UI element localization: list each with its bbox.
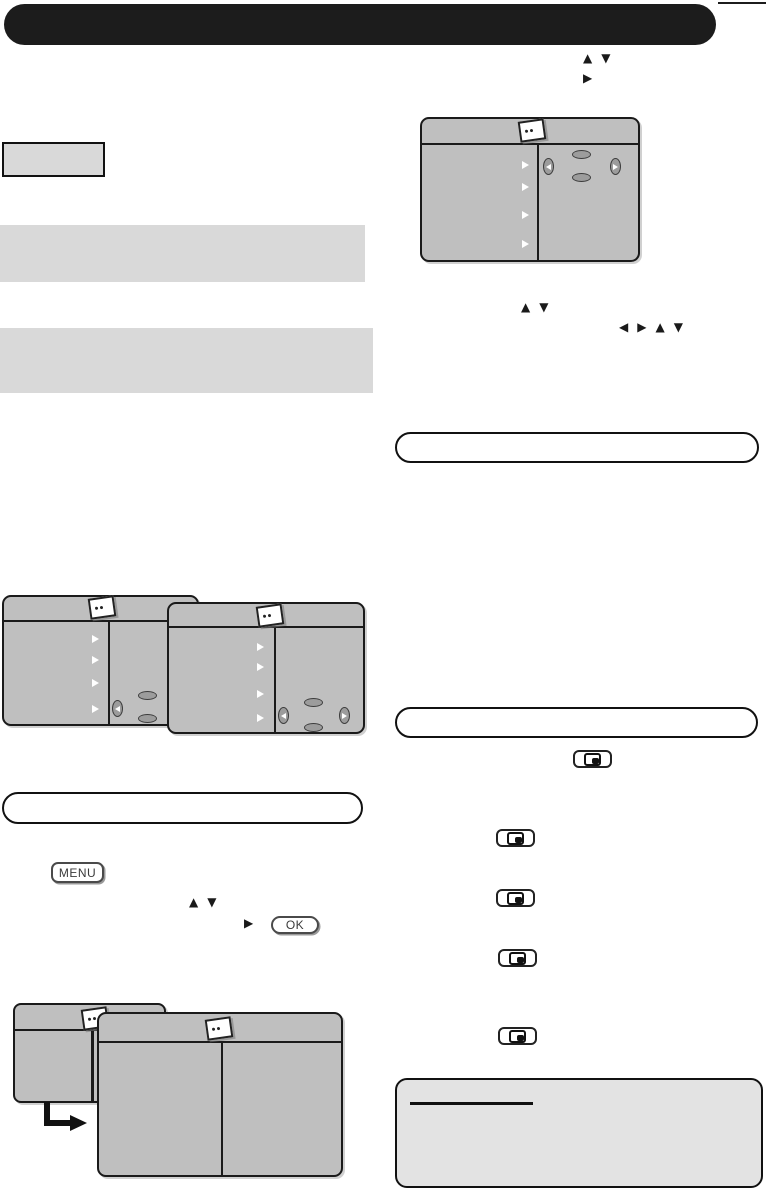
icon-dot xyxy=(217,1027,220,1030)
menu-item-arrow-icon xyxy=(257,714,264,722)
header-rule xyxy=(718,2,766,4)
flow-arrow-icon xyxy=(44,1120,72,1126)
display-mode-button-icon xyxy=(507,892,524,905)
menu-item-arrow-icon xyxy=(522,183,529,191)
osd-menu-icon xyxy=(256,603,285,627)
menu-item-arrow-icon xyxy=(92,635,99,643)
ok-button-label: OK xyxy=(286,918,304,932)
menu-item-arrow-icon xyxy=(257,643,264,651)
callout-pill xyxy=(395,432,759,463)
cursor-arrows-annotation: ▲ ▼ xyxy=(521,301,548,313)
text-highlight-bar xyxy=(0,328,373,393)
cursor-arrow-annotation: ▶ xyxy=(244,917,253,929)
section-label-box xyxy=(2,142,105,177)
flow-arrow-icon xyxy=(70,1115,87,1131)
icon-dot xyxy=(525,130,528,133)
menu-item-arrow-icon xyxy=(522,161,529,169)
down-arrow-icon: ▼ xyxy=(207,896,216,908)
up-arrow-icon: ▲ xyxy=(189,896,198,908)
icon-dot xyxy=(95,607,98,610)
cursor-down-key-icon xyxy=(138,714,157,723)
note-heading-underline xyxy=(410,1102,533,1105)
cursor-left-key-icon xyxy=(543,158,554,175)
display-mode-button-icon xyxy=(509,952,526,965)
up-arrow-icon: ▲ xyxy=(521,301,530,313)
osd-menu-icon xyxy=(88,595,117,619)
ok-button: OK xyxy=(271,916,319,934)
menu-item-arrow-icon xyxy=(257,690,264,698)
display-mode-button-icon xyxy=(507,832,524,845)
icon-dot xyxy=(530,129,533,132)
display-mode-button-icon xyxy=(509,1030,526,1043)
menu-item-arrow-icon xyxy=(522,240,529,248)
icon-dot xyxy=(268,614,271,617)
screen-divider xyxy=(221,1043,223,1175)
display-mode-button xyxy=(496,889,535,907)
icon-dot xyxy=(93,1017,96,1020)
icon-dot xyxy=(88,1018,91,1021)
callout-pill xyxy=(2,792,363,824)
osd-menu-screen xyxy=(97,1012,343,1177)
cursor-down-key-icon xyxy=(304,723,323,732)
left-arrow-icon: ◀ xyxy=(619,321,628,333)
right-arrow-icon: ▶ xyxy=(583,72,592,84)
up-arrow-icon: ▲ xyxy=(655,321,664,333)
cursor-left-key-icon xyxy=(278,707,289,724)
cursor-up-key-icon xyxy=(304,698,323,707)
cursor-arrows-annotation: ▲ ▼ xyxy=(189,896,216,908)
cursor-left-key-icon xyxy=(112,700,123,717)
display-mode-button xyxy=(496,829,535,847)
cursor-arrows-annotation: ▲ ▼ xyxy=(583,52,610,64)
osd-menu-screen xyxy=(420,117,640,262)
cursor-right-key-icon xyxy=(339,707,350,724)
cursor-down-key-icon xyxy=(572,173,591,182)
menu-button: MENU xyxy=(51,862,104,883)
display-mode-button xyxy=(573,750,612,768)
manual-page: ▲ ▼ ▶ ▲ ▼ ◀ ▶ ▲ ▼ xyxy=(0,0,766,1191)
callout-pill xyxy=(395,707,758,738)
up-arrow-icon: ▲ xyxy=(583,52,592,64)
text-highlight-bar xyxy=(0,225,365,282)
cursor-arrows-annotation: ◀ ▶ ▲ ▼ xyxy=(619,321,683,333)
page-title-banner xyxy=(4,4,716,45)
icon-dot xyxy=(100,606,103,609)
menu-button-label: MENU xyxy=(59,866,96,880)
menu-item-arrow-icon xyxy=(92,656,99,664)
menu-item-arrow-icon xyxy=(92,705,99,713)
osd-menu-icon xyxy=(205,1016,234,1040)
screen-divider xyxy=(274,628,276,732)
right-arrow-icon: ▶ xyxy=(637,321,646,333)
screen-divider xyxy=(108,622,110,724)
down-arrow-icon: ▼ xyxy=(539,301,548,313)
display-mode-button xyxy=(498,1027,537,1045)
menu-item-arrow-icon xyxy=(522,211,529,219)
note-box xyxy=(395,1078,763,1188)
right-arrow-icon: ▶ xyxy=(244,917,253,929)
down-arrow-icon: ▼ xyxy=(674,321,683,333)
cursor-arrow-annotation: ▶ xyxy=(583,72,592,84)
icon-dot xyxy=(263,615,266,618)
display-mode-button xyxy=(498,949,537,967)
down-arrow-icon: ▼ xyxy=(601,52,610,64)
cursor-up-key-icon xyxy=(138,691,157,700)
menu-item-arrow-icon xyxy=(92,679,99,687)
icon-dot xyxy=(212,1028,215,1031)
menu-item-arrow-icon xyxy=(257,663,264,671)
screen-divider xyxy=(91,1031,94,1101)
cursor-up-key-icon xyxy=(572,150,591,159)
display-mode-button-icon xyxy=(584,753,601,766)
osd-menu-icon xyxy=(518,118,547,142)
cursor-right-key-icon xyxy=(610,158,621,175)
screen-divider xyxy=(537,145,539,260)
osd-menu-screen xyxy=(167,602,365,734)
